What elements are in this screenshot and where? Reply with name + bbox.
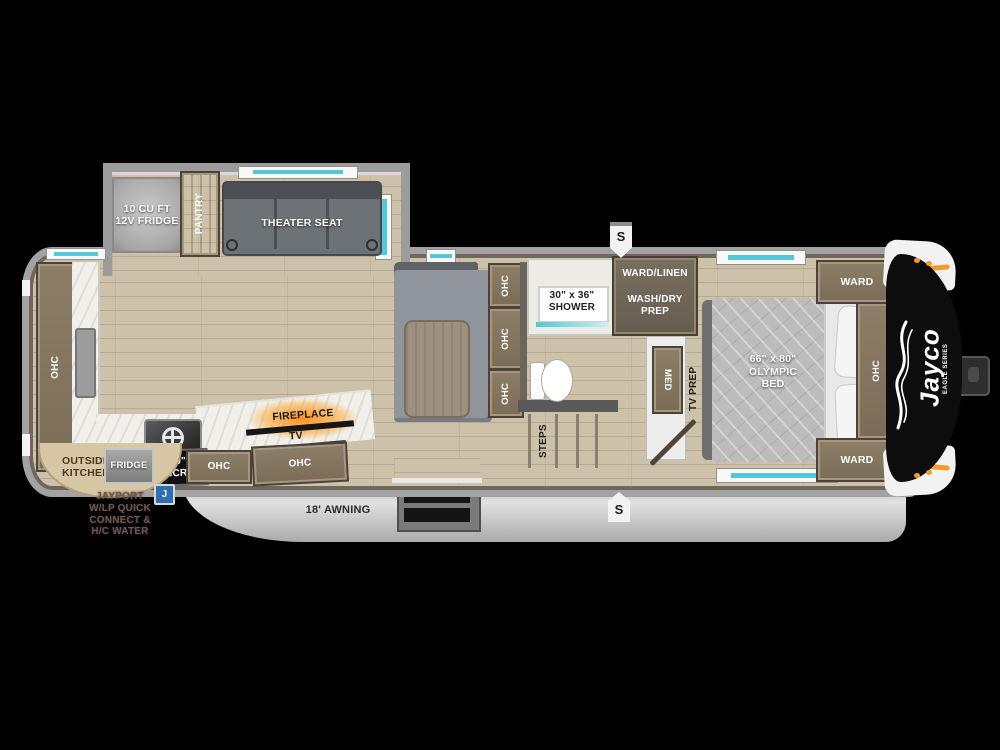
jayport-label: JAYPORT W/LP QUICK CONNECT & H/C WATER (74, 491, 166, 541)
theater-seat-label: THEATER SEAT (242, 205, 362, 241)
floorplan-canvas: 18' AWNING 10 CU FT 12V FRIDGE PANTRY TH… (0, 0, 1000, 750)
med-cabinet: MED (652, 346, 683, 414)
window-rear-1 (22, 280, 30, 296)
outside-fridge: FRIDGE (104, 448, 154, 484)
window-glass (253, 170, 343, 174)
kitchen-ohc-right: OHC (251, 442, 349, 487)
window-glass (54, 252, 98, 256)
entry-doorway (394, 458, 480, 480)
kitchen-ohc-left: OHC (186, 450, 252, 484)
step-line (576, 414, 579, 468)
outside-fridge-label: FRIDGE (110, 460, 147, 471)
bath-wall-left (520, 262, 527, 412)
wash-dry-closet: WARD/LINEN WASH/DRY PREP (612, 256, 698, 336)
ward-label: WARD (841, 276, 874, 288)
cupholder-icon (226, 239, 238, 251)
ohc-label: OHC (208, 461, 231, 473)
cupholder-icon (366, 239, 378, 251)
theater-backrest (224, 183, 380, 199)
tv-label: TV (280, 429, 313, 443)
awning-label: 18' AWNING (288, 503, 388, 518)
theater-seat: THEATER SEAT (222, 181, 382, 256)
step-tread (404, 508, 470, 522)
wash-dry-label: WASH/DRY PREP (614, 294, 696, 318)
bed-label: 66" x 80" OLYMPIC BED (714, 344, 832, 400)
window-dinette-top (426, 249, 456, 263)
fridge-12v: 10 CU FT 12V FRIDGE (112, 177, 182, 253)
slide-window-top (238, 166, 358, 179)
med-label: MED (662, 369, 673, 391)
bath-wall-bottom (518, 400, 618, 412)
ohc-label: OHC (288, 458, 311, 471)
window-kitchen-top (46, 248, 106, 260)
ward-label: WARD (841, 454, 874, 466)
hitch-pin-detail (968, 367, 979, 382)
interior-steps: STEPS (528, 414, 598, 468)
step-line (555, 414, 558, 468)
window-glass (731, 473, 822, 478)
dinette-ohc-1: OHC (488, 263, 524, 308)
ohc-label: OHC (871, 360, 882, 382)
ohc-label: OHC (500, 328, 511, 350)
dinette-ohc-2: OHC (488, 307, 524, 370)
fridge-label: 10 CU FT 12V FRIDGE (115, 203, 178, 228)
ward-linen-label: WARD/LINEN (614, 268, 696, 280)
marker-light (926, 261, 932, 266)
rear-ohc: OHC (36, 262, 76, 472)
speaker-label: S (610, 229, 632, 244)
brand-sub-label: EAGLE SERIES (942, 314, 951, 424)
burner-cross (164, 436, 181, 439)
shower-label: 30" x 36" SHOWER (537, 284, 607, 320)
ohc-label: OHC (500, 275, 511, 297)
marker-light (914, 473, 920, 478)
toilet-bowl (541, 359, 573, 402)
pantry-label: PANTRY (194, 193, 206, 234)
window-rear-2 (22, 434, 30, 456)
tv-prep-label: TV PREP (686, 352, 702, 426)
rear-ohc-label: OHC (50, 356, 62, 379)
dinette-table (404, 320, 470, 418)
shower-glass (536, 322, 609, 327)
entry-threshold (392, 478, 482, 483)
marker-light (914, 258, 920, 263)
window-glass (728, 255, 795, 260)
pantry: PANTRY (180, 171, 220, 257)
marker-light (926, 470, 932, 475)
shower: 30" x 36" SHOWER (527, 258, 620, 336)
rear-sink (75, 328, 96, 398)
speaker-label: S (608, 502, 630, 517)
steps-label: STEPS (535, 416, 553, 466)
window-glass (430, 254, 451, 259)
ohc-label: OHC (500, 383, 511, 405)
window-bedroom-top (716, 250, 806, 265)
